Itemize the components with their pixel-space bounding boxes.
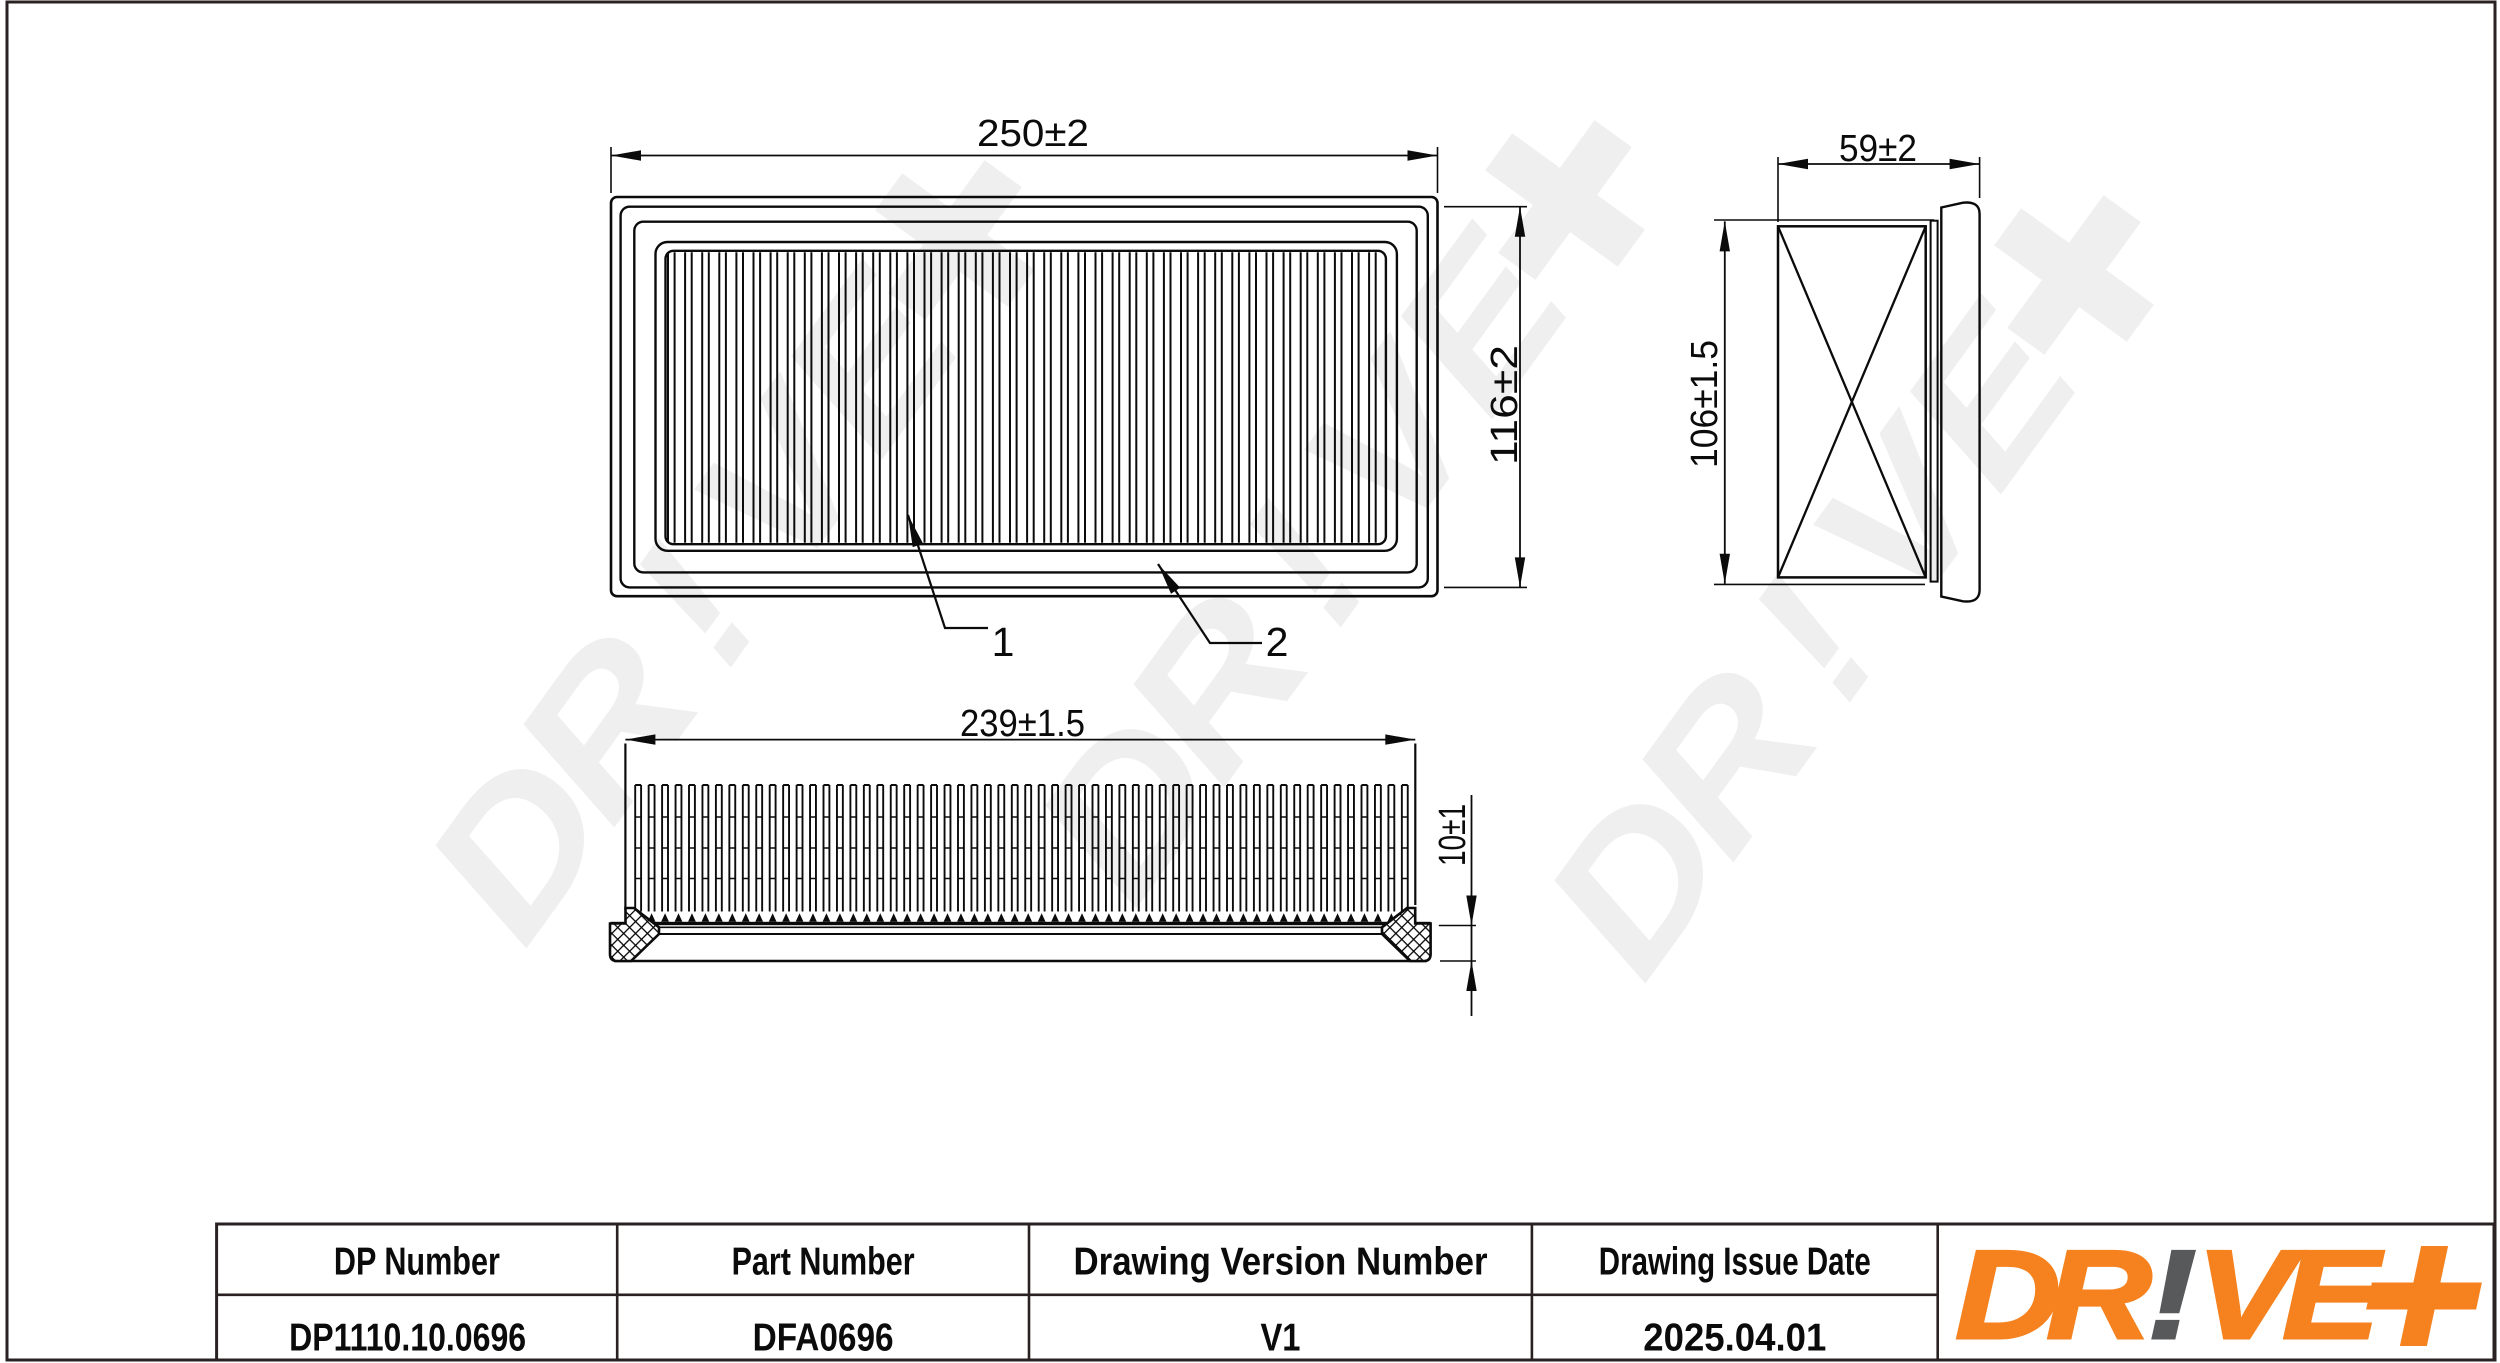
svg-text:V1: V1 bbox=[1261, 1317, 1301, 1360]
svg-text:250±2: 250±2 bbox=[977, 113, 1089, 155]
svg-text:2: 2 bbox=[1266, 619, 1289, 665]
svg-text:116±2: 116±2 bbox=[1484, 345, 1526, 465]
svg-text:DP Number: DP Number bbox=[334, 1241, 500, 1284]
svg-text:106±1.5: 106±1.5 bbox=[1684, 340, 1726, 468]
svg-text:Part Number: Part Number bbox=[732, 1241, 915, 1284]
svg-text:DFA0696: DFA0696 bbox=[753, 1317, 894, 1360]
svg-text:D: D bbox=[1955, 1223, 2061, 1363]
svg-text:R: R bbox=[2046, 1223, 2152, 1363]
svg-text:1: 1 bbox=[992, 619, 1015, 665]
svg-text:10±1: 10±1 bbox=[1432, 804, 1474, 866]
svg-text:59±2: 59±2 bbox=[1839, 128, 1917, 170]
svg-text:Drawing Version Number: Drawing Version Number bbox=[1074, 1241, 1488, 1284]
svg-text:239±1.5: 239±1.5 bbox=[960, 703, 1085, 745]
svg-text:2025.04.01: 2025.04.01 bbox=[1643, 1317, 1826, 1360]
svg-text:!: ! bbox=[2148, 1223, 2197, 1363]
svg-text:DP1110.10.0696: DP1110.10.0696 bbox=[289, 1317, 526, 1360]
svg-text:E: E bbox=[2282, 1223, 2384, 1363]
svg-text:Drawing Issue Date: Drawing Issue Date bbox=[1599, 1241, 1871, 1284]
